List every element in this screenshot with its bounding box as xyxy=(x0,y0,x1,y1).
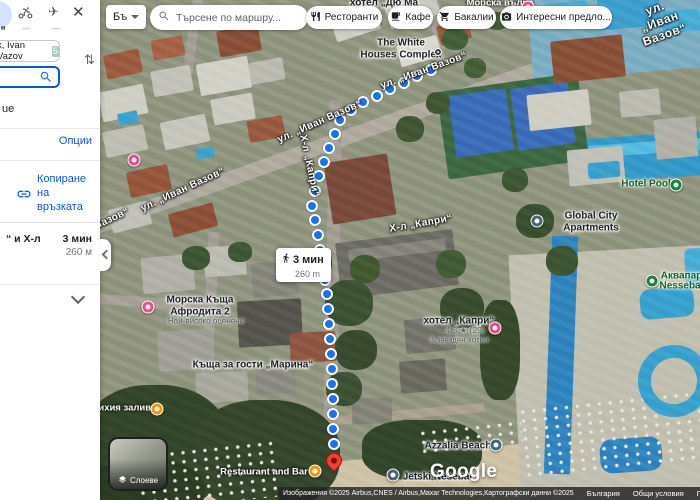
attribution-text: Изображения ©2025 Airbus,CNES / Airbus,M… xyxy=(283,490,574,497)
satellite-feature xyxy=(195,147,214,160)
poi-marker[interactable] xyxy=(387,469,400,482)
route-dot xyxy=(326,378,338,390)
satellite-feature xyxy=(550,34,626,83)
route-dot xyxy=(327,423,339,435)
route-dot xyxy=(309,214,321,226)
google-logo[interactable]: Google xyxy=(430,461,497,483)
satellite-feature xyxy=(248,57,285,85)
route-dot xyxy=(329,128,341,140)
route-dot xyxy=(312,229,324,241)
route-dot xyxy=(327,408,339,420)
poi-rating-hotel-kapri[interactable]: 4,3 ★ (29) xyxy=(445,326,484,336)
hotel-marker[interactable] xyxy=(142,301,155,314)
restaurant-icon xyxy=(310,11,321,25)
poi-label-hotel-pool[interactable]: Hotel Pool xyxy=(621,178,670,190)
satellite-feature xyxy=(502,168,528,192)
route-dot xyxy=(324,333,336,345)
satellite-feature xyxy=(399,358,447,393)
directions-panel: н — ✈ — ✕ x, Ivan Vazov 5 ⇅ ue Опции Коп… xyxy=(0,0,100,500)
satellite-feature xyxy=(546,246,578,276)
satellite-feature xyxy=(117,110,139,126)
satellite-feature xyxy=(587,161,620,180)
chip-restaurants[interactable]: Ресторанти xyxy=(306,6,382,29)
route-dot xyxy=(325,348,337,360)
mode-bicycle-button[interactable] xyxy=(18,6,33,24)
divider xyxy=(0,284,100,285)
chevron-down-icon xyxy=(131,15,139,19)
search-along-route-input[interactable]: Търсене по маршру... xyxy=(150,5,308,30)
add-destination-field[interactable] xyxy=(0,66,60,88)
close-icon[interactable]: ✕ xyxy=(72,3,85,21)
route-duration-tooltip[interactable]: 3 мин 260 m xyxy=(276,248,331,282)
hotel-marker[interactable] xyxy=(128,154,141,167)
cafe-icon xyxy=(390,11,401,25)
satellite-feature xyxy=(255,367,296,395)
search-icon xyxy=(158,9,170,27)
route-dot xyxy=(321,288,333,300)
chevron-down-icon[interactable] xyxy=(71,290,85,304)
satellite-feature xyxy=(335,330,377,370)
google-maps-window: ул. „Иван Вазов“Вазов“ул. „Иван Вазов“ул… xyxy=(0,0,700,500)
search-placeholder: Търсене по маршру... xyxy=(176,12,281,24)
satellite-feature xyxy=(196,56,253,97)
satellite-feature xyxy=(396,116,424,142)
tooltip-distance: 260 m xyxy=(295,269,324,279)
route-dot xyxy=(323,318,335,330)
route-dot xyxy=(318,156,330,168)
destination-selected-char: 5 xyxy=(52,46,59,57)
satellite-feature xyxy=(352,397,393,424)
swap-icon[interactable]: ⇅ xyxy=(84,52,95,68)
lodging-marker[interactable] xyxy=(531,215,544,228)
satellite-feature xyxy=(350,255,380,283)
address-fragment: ue xyxy=(2,103,14,115)
hotel-marker[interactable] xyxy=(489,322,502,335)
poi-sublabel-top-rated[interactable]: Най-високо оценени xyxy=(168,316,244,325)
divider xyxy=(0,160,100,161)
satellite-feature xyxy=(426,92,450,114)
satellite-feature xyxy=(228,242,252,262)
chip-label: Ресторанти xyxy=(325,12,379,23)
satellite-feature xyxy=(653,116,698,160)
satellite-feature xyxy=(436,250,466,278)
grocery-icon xyxy=(439,11,450,25)
restaurant-marker[interactable] xyxy=(309,465,322,478)
link-terms[interactable]: Общи условия xyxy=(633,489,684,498)
satellite-feature xyxy=(619,88,661,117)
satellite-feature xyxy=(442,28,468,50)
route-distance: 260 м xyxy=(0,247,92,258)
satellite-feature xyxy=(160,114,211,151)
attraction-marker[interactable] xyxy=(646,275,659,288)
options-link[interactable]: Опции xyxy=(0,135,92,147)
chip-label: Интересни предло... xyxy=(516,12,611,23)
layers-label: Слоеве xyxy=(130,476,158,485)
tooltip-duration: 3 мин xyxy=(293,254,324,266)
destination-field[interactable]: x, Ivan Vazov 5 xyxy=(0,40,60,62)
walking-icon xyxy=(281,251,291,269)
flight-duration-dash: — xyxy=(52,24,60,33)
search-icon xyxy=(39,70,53,84)
bicycle-duration-dash: — xyxy=(22,24,30,33)
satellite-feature xyxy=(103,49,143,80)
collapse-panel-button[interactable] xyxy=(100,239,111,271)
satellite-feature xyxy=(526,89,591,131)
mode-duration-fragment: н xyxy=(1,25,5,32)
poi-label-tihia-zaliv[interactable]: Тихия залив xyxy=(93,404,151,415)
language-button-label: Бъ xyxy=(113,11,127,23)
route-dot xyxy=(327,393,339,405)
satellite-feature xyxy=(182,246,210,270)
chip-cafe[interactable]: Кафе xyxy=(388,6,433,29)
poi-label-restaurant-and-bar[interactable]: Restaurant and Bar xyxy=(220,468,308,479)
route-dot xyxy=(322,303,334,315)
restaurant-marker[interactable] xyxy=(151,403,164,416)
route-dot xyxy=(323,142,335,154)
chip-interesting-offers[interactable]: Интересни предло... xyxy=(500,6,612,29)
layers-button[interactable]: Слоеве xyxy=(108,437,168,491)
poi-label-global-city-apartments[interactable]: Global City Apartments xyxy=(537,211,646,234)
poi-label-azzalia-beach[interactable]: Azzalia Beach xyxy=(425,440,492,452)
poi-label-nessebar[interactable]: Nessebar xyxy=(659,280,700,292)
route-dot xyxy=(328,438,340,450)
aquapark-pool xyxy=(638,345,700,417)
beach-marker[interactable] xyxy=(490,439,503,452)
route-dot xyxy=(306,200,318,212)
route-dot xyxy=(326,363,338,375)
attraction-marker[interactable] xyxy=(670,179,683,192)
satellite-feature xyxy=(150,65,194,98)
divider xyxy=(0,128,100,129)
poi-sublabel-hotel-kapri[interactable]: 3-звезден хотел xyxy=(429,335,488,344)
destination-value: x, Ivan Vazov xyxy=(0,40,52,62)
poi-label-afrodita[interactable]: Морска Къща Афродита 2 xyxy=(167,295,234,318)
chip-label: Кафе xyxy=(405,12,430,23)
link-icon xyxy=(16,186,32,207)
chip-groceries[interactable]: Бакалии xyxy=(437,6,496,29)
poi-label-white-houses-complex[interactable]: The White Houses Complex xyxy=(360,38,441,61)
copy-link-button[interactable]: Копиране на връзката xyxy=(37,172,95,214)
route-dot xyxy=(371,90,383,102)
poi-label-marina[interactable]: Къща за гости „Марина“ xyxy=(193,359,314,371)
satellite-feature xyxy=(448,88,514,157)
route-duration: 3 мин xyxy=(0,233,92,245)
divider xyxy=(0,222,100,223)
language-button[interactable]: Бъ xyxy=(106,5,146,29)
mode-flight-button[interactable]: ✈ xyxy=(48,4,59,20)
offers-icon xyxy=(501,11,512,25)
poi-dot-marker[interactable] xyxy=(434,48,442,56)
attribution-bar: Изображения ©2025 Airbus,CNES / Airbus,M… xyxy=(278,487,700,500)
layers-icon xyxy=(118,475,127,486)
satellite-feature xyxy=(324,153,397,224)
chip-label: Бакалии xyxy=(454,12,493,23)
satellite-feature xyxy=(151,35,186,60)
link-bulgaria[interactable]: България xyxy=(587,489,620,498)
satellite-feature xyxy=(102,124,148,158)
